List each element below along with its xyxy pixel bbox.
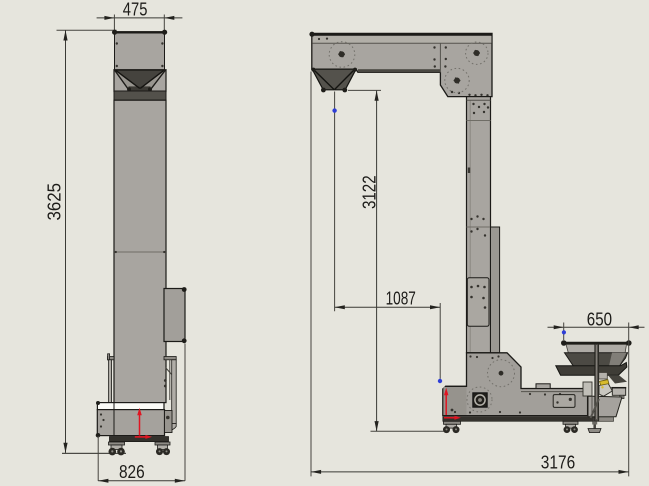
svg-text:826: 826 [119, 462, 145, 482]
svg-text:3122: 3122 [360, 175, 380, 209]
svg-text:475: 475 [123, 0, 148, 19]
svg-text:3625: 3625 [45, 183, 65, 221]
svg-text:650: 650 [587, 310, 612, 330]
svg-text:3176: 3176 [541, 452, 575, 472]
svg-text:1087: 1087 [386, 289, 416, 309]
